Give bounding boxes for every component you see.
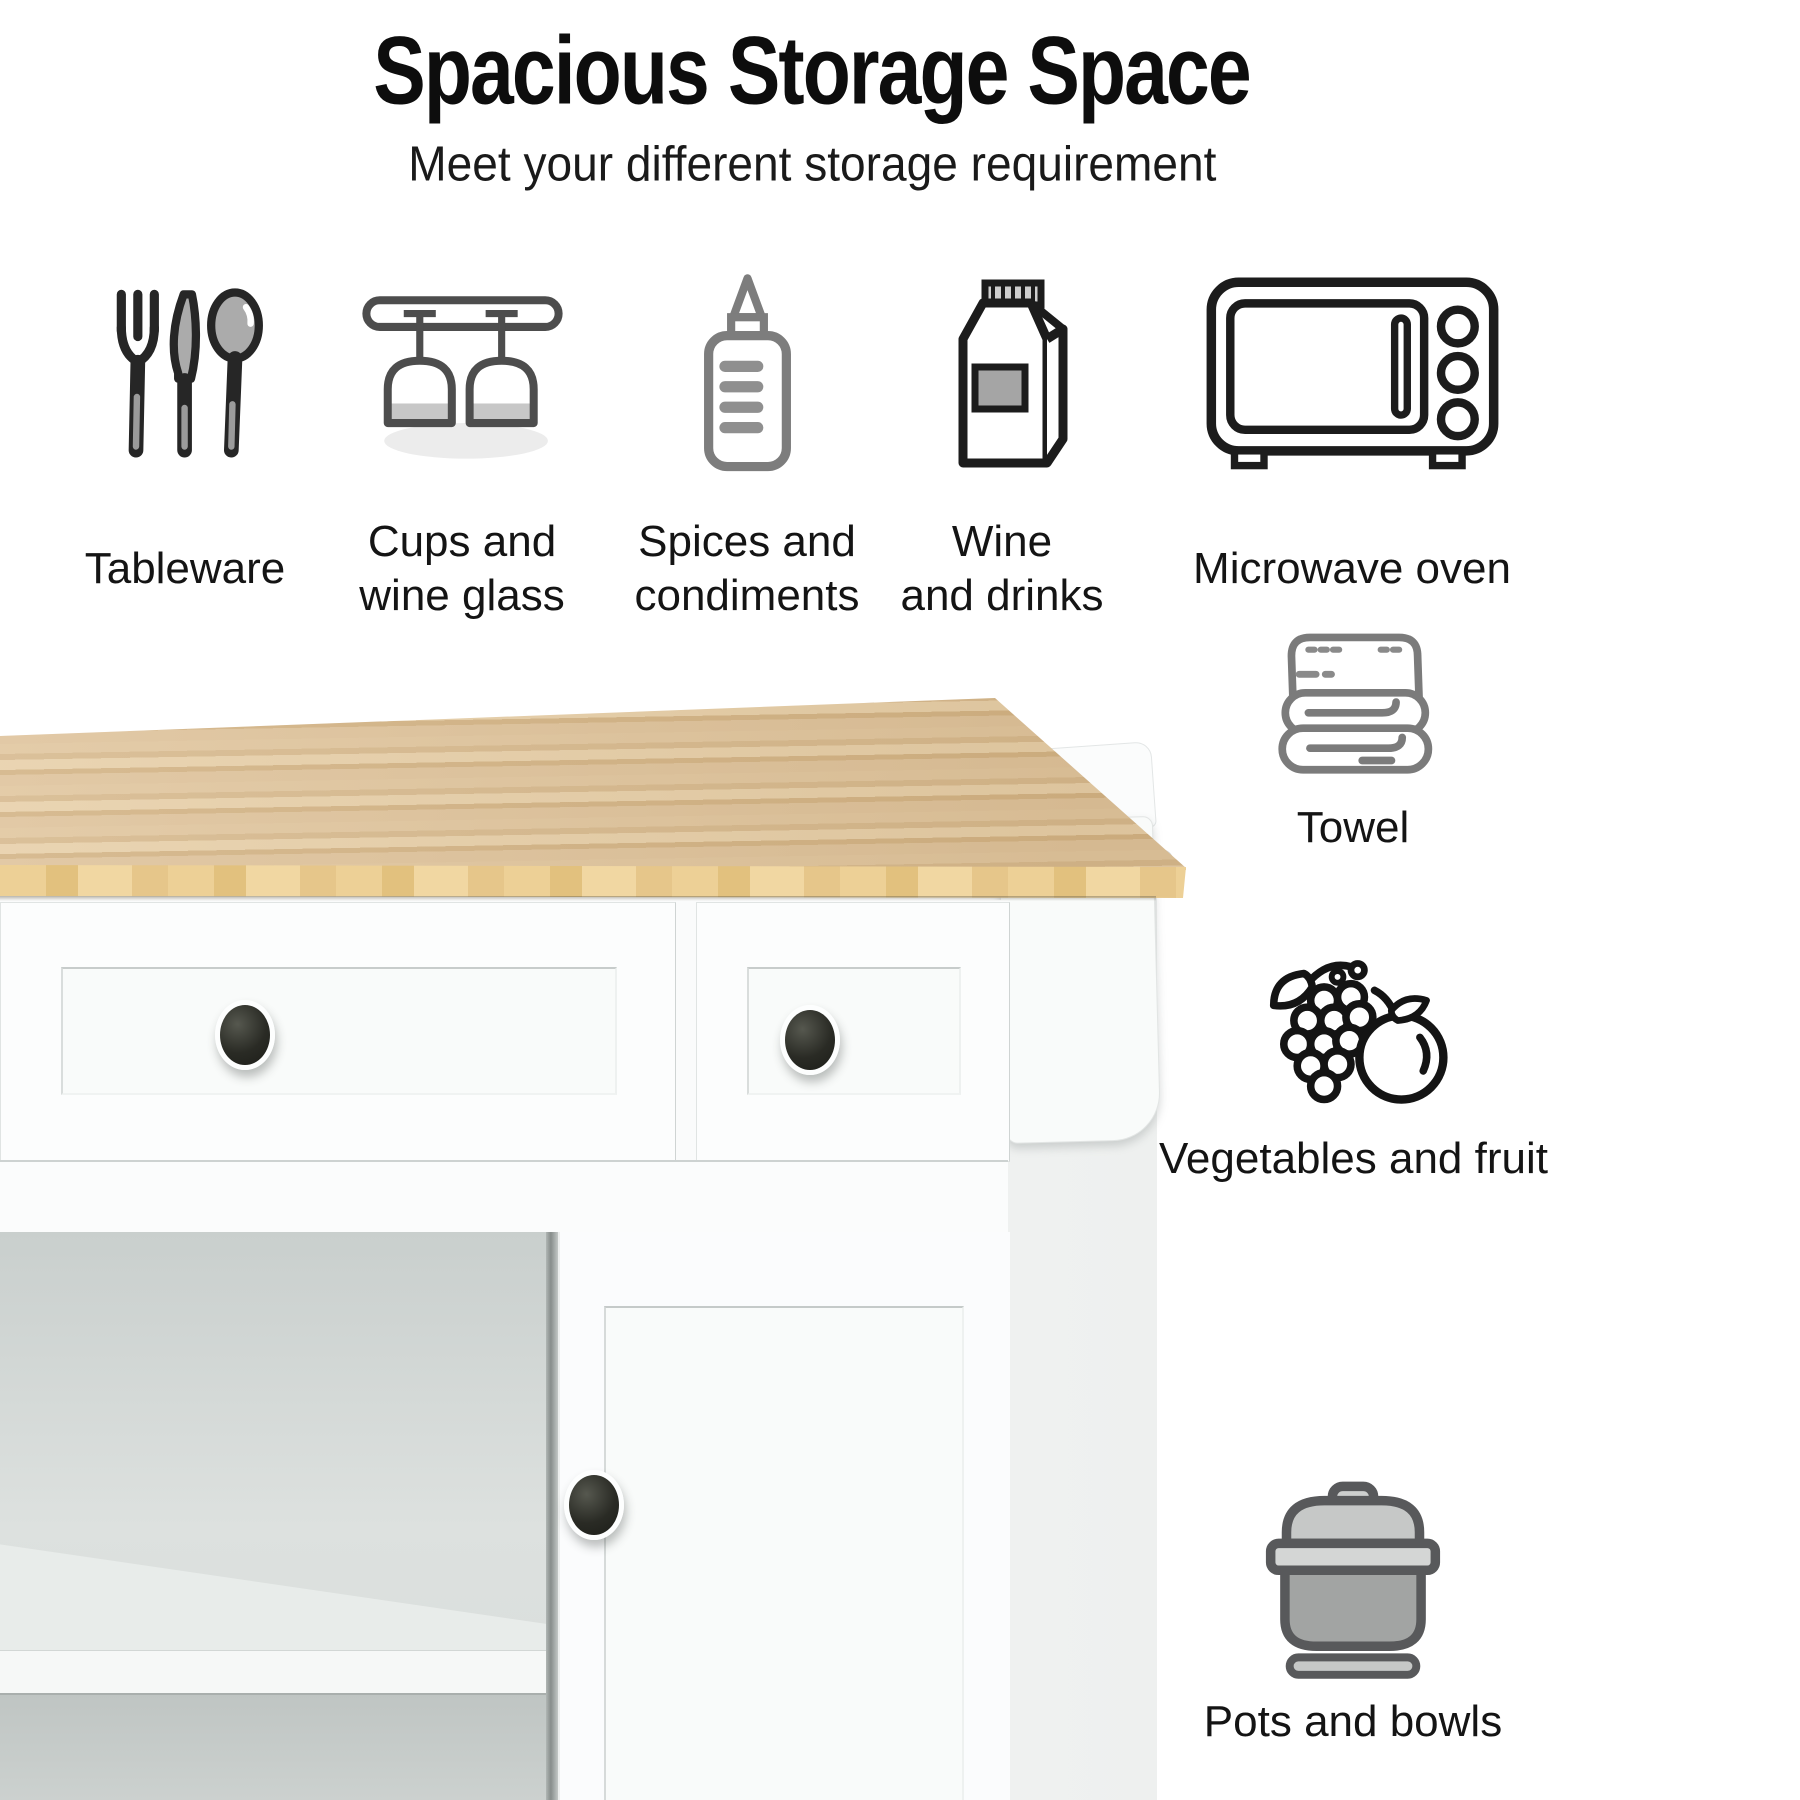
feature-label-line: Wine bbox=[952, 515, 1052, 569]
cabinet-door-panel bbox=[604, 1306, 964, 1800]
shelf-front-edge bbox=[0, 1650, 546, 1696]
feature-microwave-oven: Microwave oven bbox=[1177, 262, 1527, 623]
feature-wine-drinks: Wine and drinks bbox=[857, 262, 1147, 623]
open-shelf-compartment bbox=[0, 1232, 546, 1800]
feature-vegetables-label: Vegetables and fruit bbox=[1159, 1132, 1548, 1186]
cabinet-door bbox=[558, 1232, 1010, 1800]
countertop-shadow bbox=[0, 896, 1156, 901]
feature-tableware-label: Tableware bbox=[85, 515, 286, 623]
feature-tableware: Tableware bbox=[25, 262, 345, 623]
cabinet-door-knob bbox=[564, 1470, 624, 1540]
feature-label-line: Towel bbox=[1297, 801, 1410, 855]
feature-label-line: Vegetables and fruit bbox=[1159, 1132, 1548, 1186]
tableware-icon bbox=[103, 262, 268, 487]
cart-middle-rail bbox=[0, 1160, 1008, 1238]
towel-icon bbox=[1273, 608, 1433, 793]
cart-front bbox=[0, 900, 1008, 1800]
wood-countertop bbox=[0, 660, 1190, 900]
feature-label-line: and drinks bbox=[900, 569, 1103, 623]
squeeze-bottle-icon bbox=[680, 262, 815, 487]
feature-cups-label: Cups and wine glass bbox=[359, 515, 564, 623]
feature-pots-bowls: Pots and bowls bbox=[1198, 1476, 1508, 1749]
drawer-left-knob bbox=[215, 1000, 275, 1070]
lower-shelf-cavity bbox=[0, 1695, 546, 1800]
page-title-text: Spacious Storage Space bbox=[374, 16, 1250, 127]
feature-pots-label: Pots and bowls bbox=[1204, 1695, 1502, 1749]
feature-spices-label: Spices and condiments bbox=[634, 515, 859, 623]
wine-glass-rack-icon bbox=[355, 262, 570, 487]
page-subtitle-text: Meet your different storage requirement bbox=[408, 135, 1216, 192]
drawer-left bbox=[0, 902, 676, 1162]
drawer-right-panel bbox=[747, 967, 961, 1095]
feature-vegetables-fruit: Vegetables and fruit bbox=[1126, 948, 1581, 1186]
page-subtitle: Meet your different storage requirement bbox=[0, 136, 1624, 191]
feature-label-line: wine glass bbox=[359, 569, 564, 623]
feature-wine-label: Wine and drinks bbox=[900, 515, 1103, 623]
feature-label-line: Pots and bowls bbox=[1204, 1695, 1502, 1749]
page-title: Spacious Storage Space bbox=[0, 16, 1624, 110]
feature-label-line: Cups and bbox=[368, 515, 556, 569]
microwave-oven-icon bbox=[1205, 262, 1500, 487]
feature-label-line: Microwave oven bbox=[1193, 542, 1511, 596]
kitchen-cart-photo bbox=[0, 660, 1200, 1800]
feature-towel: Towel bbox=[1203, 608, 1503, 855]
cabinet-divider bbox=[546, 1232, 558, 1800]
drawer-left-panel bbox=[61, 967, 617, 1095]
feature-spices-condiments: Spices and condiments bbox=[602, 262, 892, 623]
product-infographic: Spacious Storage Space Meet your differe… bbox=[0, 0, 1800, 1800]
vegetables-and-fruit-icon bbox=[1256, 948, 1451, 1120]
feature-label-line: Spices and bbox=[638, 515, 856, 569]
drawer-right bbox=[696, 902, 1010, 1162]
feature-towel-label: Towel bbox=[1297, 801, 1410, 855]
feature-label-line: condiments bbox=[634, 569, 859, 623]
feature-label-line: Tableware bbox=[85, 542, 286, 596]
feature-microwave-label: Microwave oven bbox=[1193, 515, 1511, 623]
feature-cups-wine-glass: Cups and wine glass bbox=[307, 262, 617, 623]
pot-icon bbox=[1258, 1476, 1448, 1681]
drawer-right-knob bbox=[780, 1005, 840, 1075]
drink-carton-icon bbox=[927, 262, 1077, 487]
